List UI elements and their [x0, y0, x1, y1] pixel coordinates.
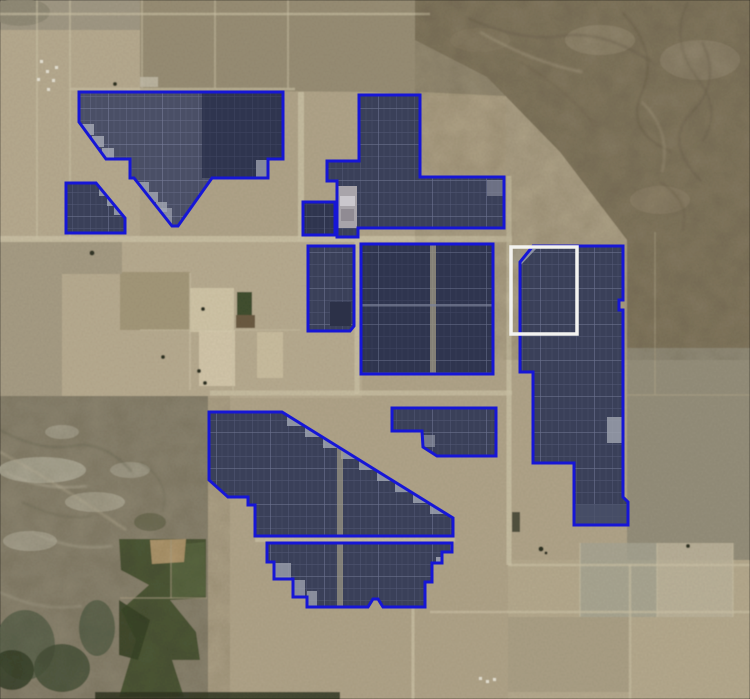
panel-gap-wing	[487, 180, 503, 196]
array-road-strip	[337, 543, 343, 607]
panel-gap-corner	[423, 435, 435, 447]
satellite-map-canvas[interactable]	[0, 0, 750, 699]
array-road-line	[361, 304, 493, 307]
solar-array-central-small-square-block-grid	[303, 202, 335, 235]
panel-lighter-block	[575, 504, 628, 525]
array-road-strip	[430, 244, 436, 374]
coarse-mottle-bottom-left	[0, 396, 230, 699]
panel-gap-notch	[256, 160, 268, 178]
panel-gap-stair	[293, 580, 305, 596]
panel-dark-subblock	[330, 302, 351, 326]
substation-structure	[340, 196, 355, 206]
satellite-map-window	[0, 0, 750, 699]
substation-structure	[341, 209, 354, 221]
panel-gap-stair	[275, 563, 291, 578]
solar-array-center-square-block-grid	[361, 244, 493, 374]
panel-gap-patch	[607, 417, 623, 443]
substation-pad	[338, 186, 357, 228]
